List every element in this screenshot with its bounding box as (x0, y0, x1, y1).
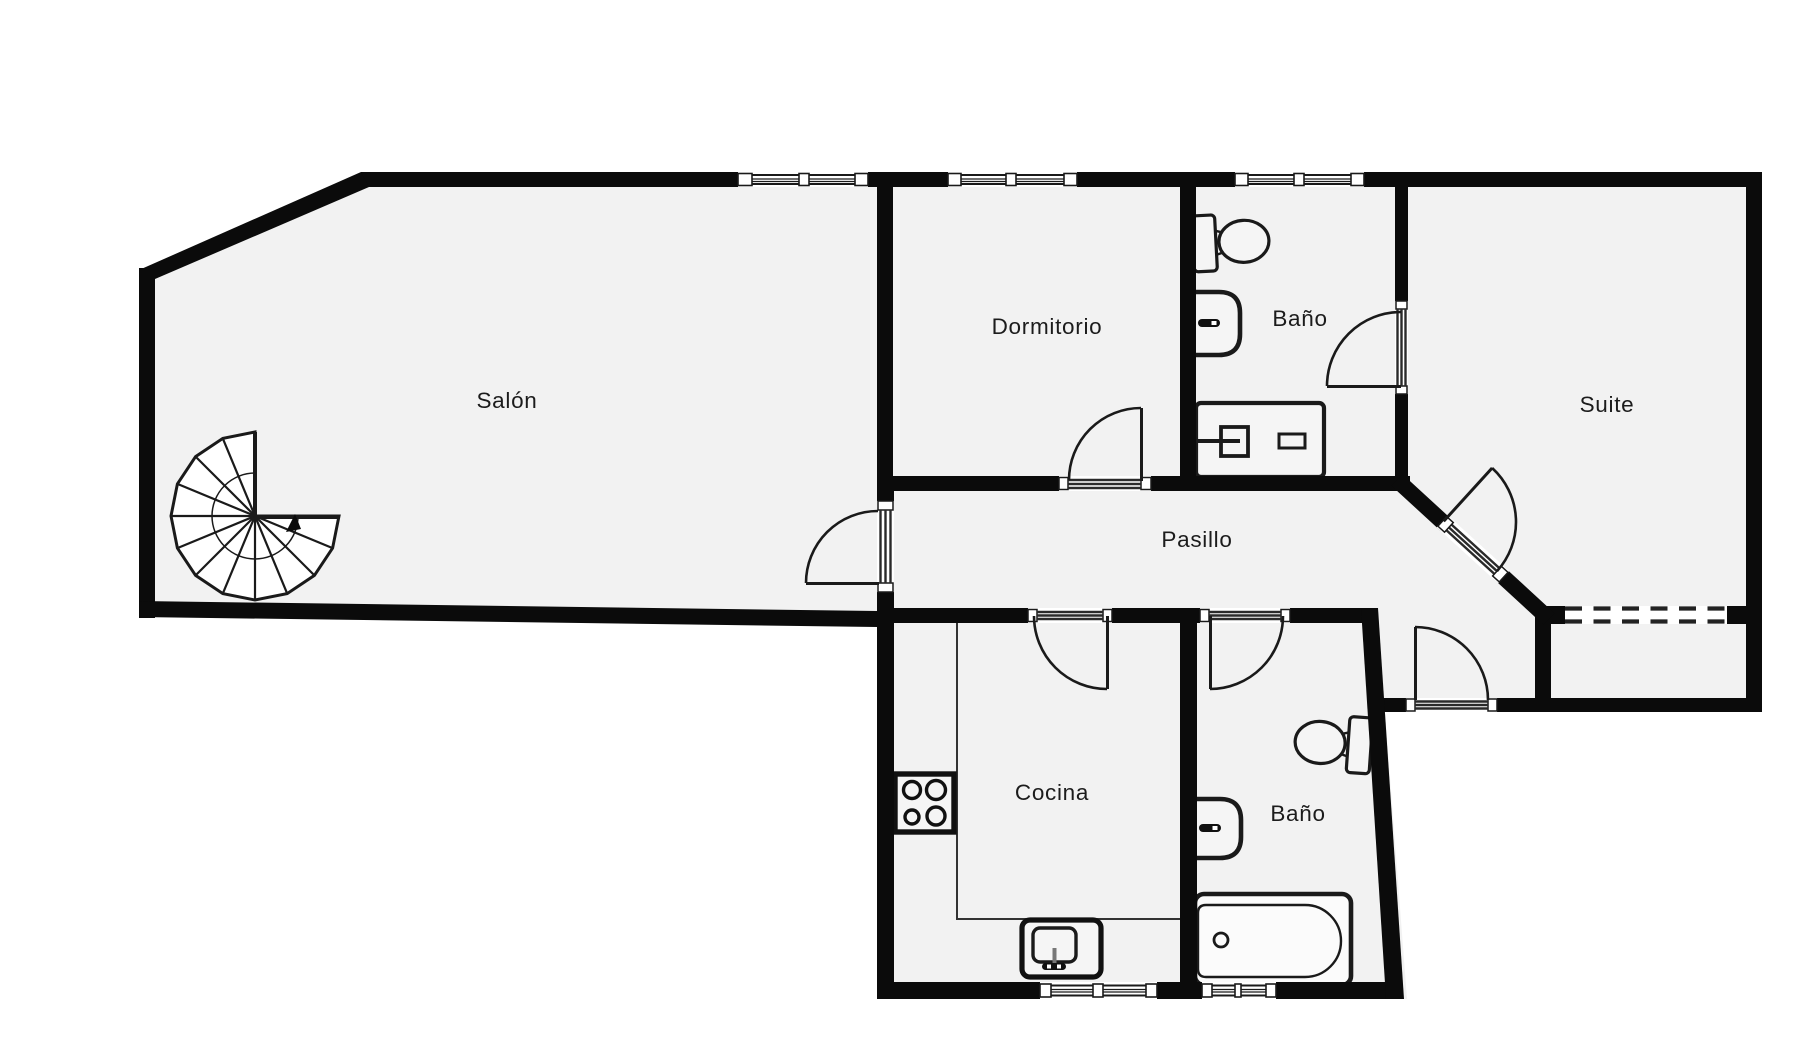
svg-text:Suite: Suite (1580, 392, 1635, 417)
svg-text:Cocina: Cocina (1015, 780, 1089, 805)
svg-text:Pasillo: Pasillo (1161, 527, 1232, 552)
svg-text:Dormitorio: Dormitorio (992, 314, 1103, 339)
svg-text:Baño: Baño (1270, 801, 1325, 826)
svg-text:Salón: Salón (476, 388, 537, 413)
svg-text:Baño: Baño (1272, 306, 1327, 331)
